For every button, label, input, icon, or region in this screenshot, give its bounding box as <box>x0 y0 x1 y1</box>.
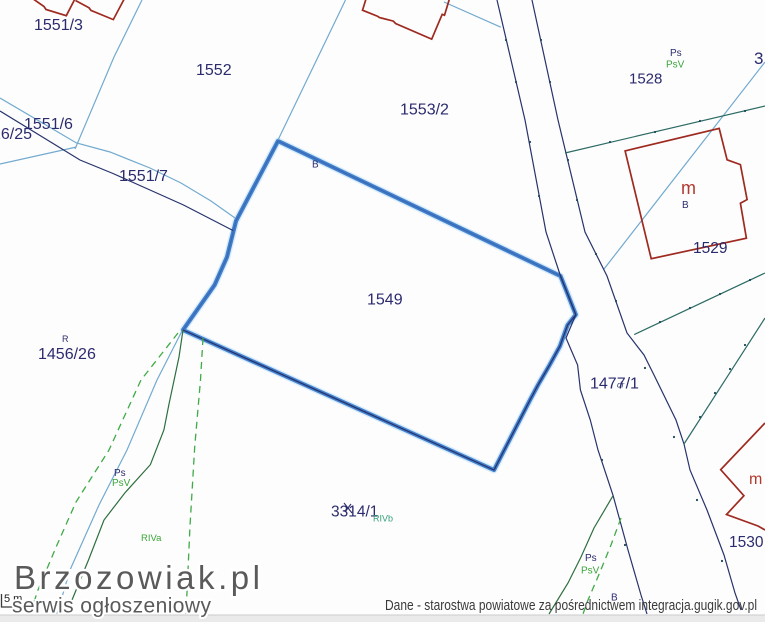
svg-text:1477/1: 1477/1 <box>590 376 639 393</box>
svg-text:PsV: PsV <box>112 478 131 489</box>
svg-text:3: 3 <box>754 49 763 68</box>
svg-text:1529: 1529 <box>693 240 727 257</box>
svg-text:1551/3: 1551/3 <box>34 17 83 34</box>
svg-text:1552: 1552 <box>196 62 232 79</box>
svg-text:B: B <box>682 200 689 211</box>
svg-text:1549: 1549 <box>367 292 403 309</box>
svg-text:RIVb: RIVb <box>373 514 393 524</box>
svg-text:serwis ogłoszeniowy: serwis ogłoszeniowy <box>12 595 212 618</box>
svg-text:PsV: PsV <box>666 60 685 71</box>
svg-text:B: B <box>312 160 319 171</box>
svg-text:RIVa: RIVa <box>141 533 162 544</box>
svg-text:1553/2: 1553/2 <box>400 102 449 119</box>
svg-text:Ps: Ps <box>585 553 597 564</box>
svg-text:R: R <box>62 334 69 344</box>
svg-text:1528: 1528 <box>629 71 662 88</box>
svg-text:Dane - starostwa powiatowe za: Dane - starostwa powiatowe za pośrednict… <box>385 598 757 614</box>
svg-text:Ps: Ps <box>670 48 682 59</box>
svg-text:dr: dr <box>617 381 624 390</box>
svg-text:1530: 1530 <box>729 534 764 551</box>
svg-text:1551/7: 1551/7 <box>119 168 168 185</box>
svg-text:m: m <box>749 471 762 488</box>
svg-text:3314/1: 3314/1 <box>331 504 378 521</box>
svg-text:PsV: PsV <box>581 566 600 577</box>
svg-text:16/25: 16/25 <box>0 126 32 143</box>
svg-text:1456/26: 1456/26 <box>38 346 96 363</box>
svg-text:m: m <box>681 178 696 198</box>
